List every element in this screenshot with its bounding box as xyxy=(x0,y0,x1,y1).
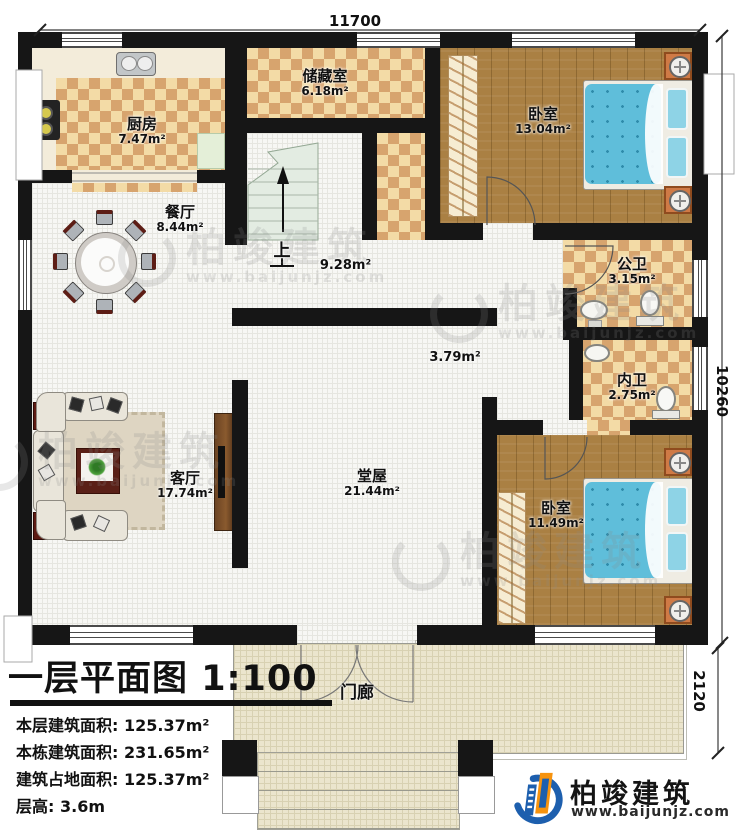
kitchen-opening xyxy=(72,173,197,181)
room-label-living: 客厅17.74m² xyxy=(139,470,231,500)
room-label-storage: 储藏室6.18m² xyxy=(270,68,380,98)
bedroom1-door-arc xyxy=(487,177,535,225)
plan-title: 一层平面图 1:100 xyxy=(8,650,318,701)
dim-width: 11700 xyxy=(315,12,395,30)
info-line-storey-height: 层高: 3.6m xyxy=(16,793,105,817)
info-line-footprint-area: 建筑占地面积: 125.37m² xyxy=(16,766,209,790)
info-line-building-area: 本栋建筑面积: 231.65m² xyxy=(16,739,209,763)
area-label-corridor: 3.79m² xyxy=(413,350,497,365)
brand-logo-icon xyxy=(508,766,566,830)
room-label-dining: 餐厅8.44m² xyxy=(130,204,230,234)
dim-porch-depth: 2120 xyxy=(690,656,708,726)
room-label-bedroom2: 卧室11.49m² xyxy=(510,500,602,530)
stairs-up-label: 上 xyxy=(270,236,294,261)
room-label-public-bath: 公卫3.15m² xyxy=(592,256,672,286)
bedroom2-door-arc xyxy=(545,437,587,479)
dim-height: 10260 xyxy=(713,356,731,426)
room-label-private-bath: 内卫2.75m² xyxy=(592,372,672,402)
extension-box xyxy=(16,70,42,180)
room-label-hall: 堂屋21.44m² xyxy=(322,468,422,498)
plan-scale: 1:100 xyxy=(201,659,317,699)
title-underline xyxy=(10,700,332,706)
info-line-floor-area: 本层建筑面积: 125.37m² xyxy=(16,712,209,736)
brand-site: www.baijunjz.com xyxy=(571,804,749,820)
floor-plan-canvas: 柏竣建筑www.baijunjz.com 柏竣建筑www.baijunjz.co… xyxy=(0,0,750,836)
room-label-kitchen: 厨房7.47m² xyxy=(92,116,192,146)
room-label-bedroom1: 卧室13.04m² xyxy=(488,106,598,136)
area-label-stair-hall: 9.28m² xyxy=(298,258,393,273)
extension-box xyxy=(704,74,734,174)
